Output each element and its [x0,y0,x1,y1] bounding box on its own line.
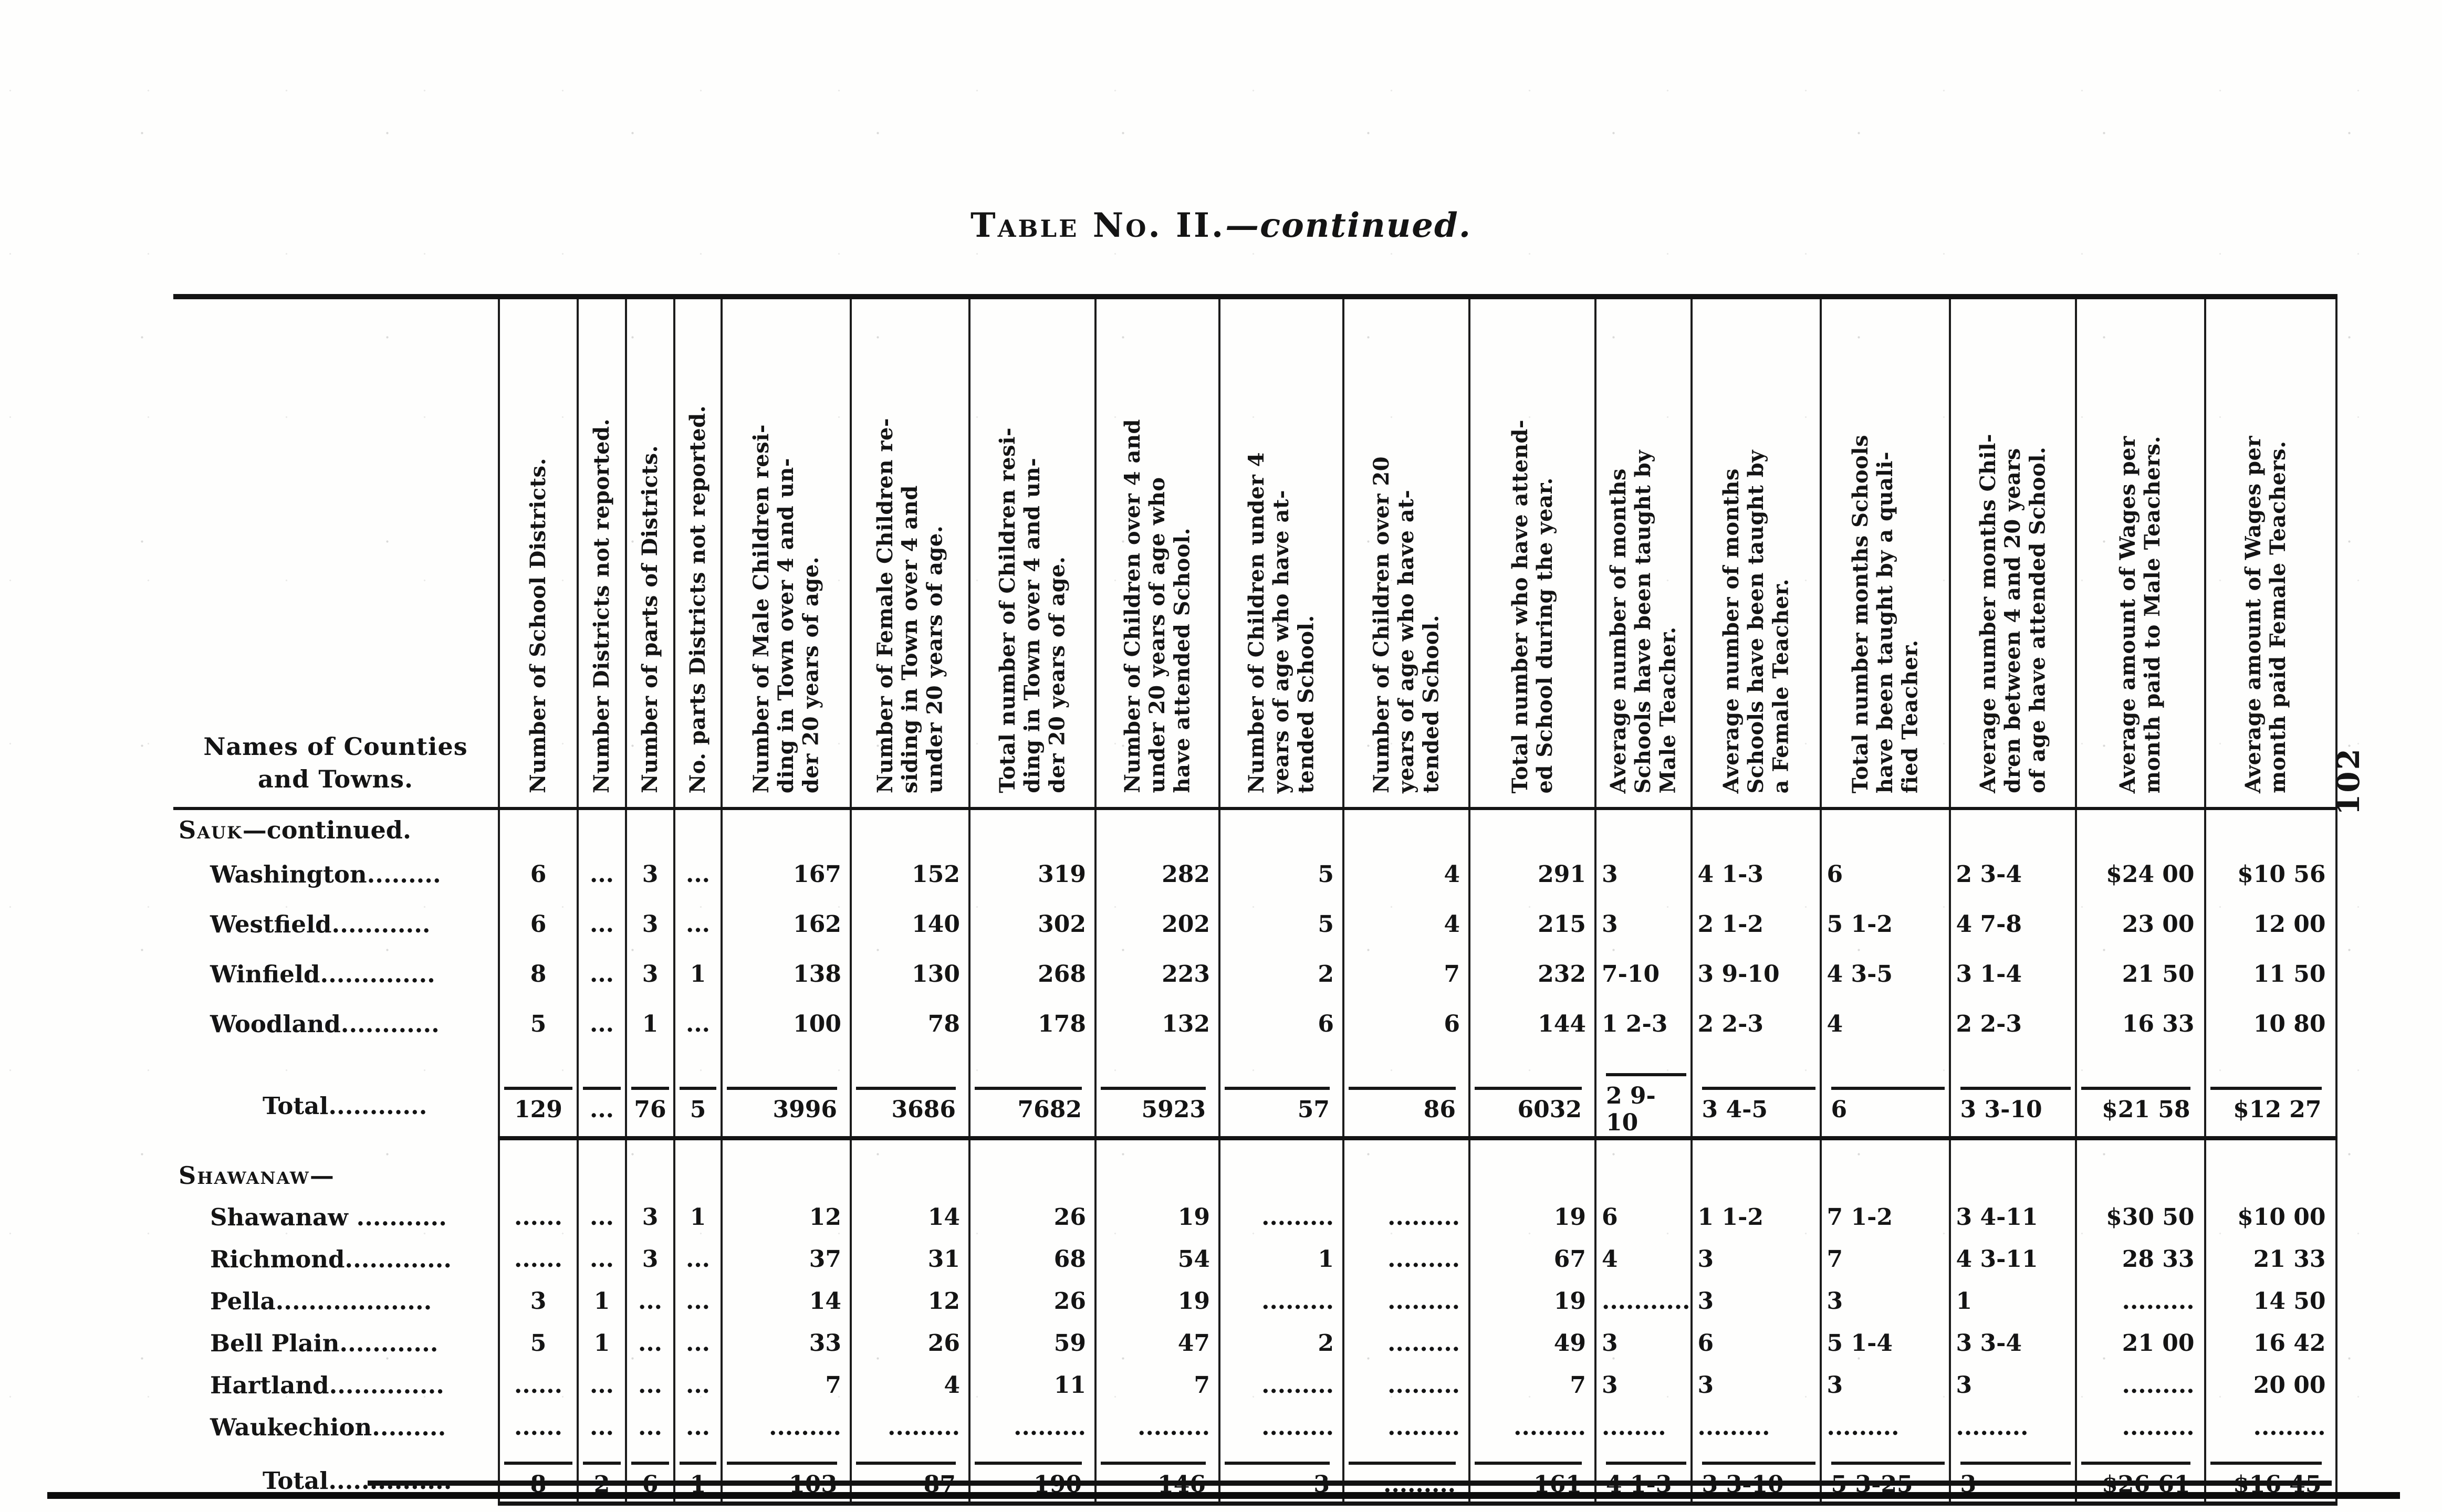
data-cell: 1 [578,1322,626,1364]
data-cell: 33 [722,1322,851,1364]
data-cell: 19 [1469,1196,1595,1238]
data-cell: 268 [969,949,1095,999]
table-row: Westfield............ 6 ... 3 ... 162 14… [173,899,2336,949]
section-heading-shawanaw: Shawanaw— [173,1155,499,1196]
column-header-months-female-teacher: Average number of months Schools have be… [1692,297,1821,808]
data-cell: 6 [1692,1322,1821,1364]
data-cell: 12 [722,1196,851,1238]
data-cell: 302 [969,899,1095,949]
data-cell: ... [626,1322,674,1364]
data-cell: ......... [2076,1280,2205,1322]
data-cell: 4 [1821,999,1950,1049]
data-cell: 1 [578,1280,626,1322]
data-cell: 59 [969,1322,1095,1364]
data-cell: 2 3-4 [1950,849,2076,899]
data-cell: 6 [1219,999,1343,1049]
data-cell: 3686 [851,1073,969,1138]
data-cell: 3 [1950,1364,2076,1406]
data-cell: 6 [499,899,578,949]
data-cell: ......... [1343,1196,1469,1238]
data-cell: ...... [499,1196,578,1238]
data-cell: 14 [722,1280,851,1322]
data-cell: 3 1-4 [1950,949,2076,999]
data-cell: 3 9-10 [1692,949,1821,999]
data-cell: 5 [1219,899,1343,949]
data-cell: ......... [1950,1406,2076,1448]
data-cell: 16 33 [2076,999,2205,1049]
data-cell: ......... [1692,1406,1821,1448]
data-cell: 21 33 [2205,1238,2336,1280]
data-cell: 129 [499,1073,578,1138]
data-cell: ... [578,899,626,949]
column-header-parts-not-reported: No. parts Districts not reported. [674,297,722,808]
column-header-districts-not-reported: Number Districts not reported. [578,297,626,808]
names-column-header: Names of Counties and Towns. [173,297,499,808]
data-cell: 19 [1469,1280,1595,1322]
data-cell: 31 [851,1238,969,1280]
data-cell: 2 [1219,1322,1343,1364]
data-cell: 14 [851,1196,969,1238]
data-cell: 21 00 [2076,1322,2205,1364]
data-cell: 5 1-4 [1821,1322,1950,1364]
row-name: Hartland.............. [173,1364,499,1406]
data-cell: 5 [674,1073,722,1138]
data-cell: 19 [1095,1196,1219,1238]
data-cell: 1 1-2 [1692,1196,1821,1238]
data-cell: 1 [674,949,722,999]
data-cell: 10 80 [2205,999,2336,1049]
data-cell: 223 [1095,949,1219,999]
data-cell: 19 [1095,1280,1219,1322]
data-cell: 144 [1469,999,1595,1049]
data-cell: 3 [1821,1364,1950,1406]
data-cell: ... [674,999,722,1049]
data-cell: 178 [969,999,1095,1049]
data-cell: 3 [1692,1280,1821,1322]
data-cell: 23 00 [2076,899,2205,949]
data-cell: ........ [1595,1406,1692,1448]
data-cell: ... [578,1073,626,1138]
data-cell: 3 [1692,1238,1821,1280]
data-cell: 162 [722,899,851,949]
data-cell: 3 [626,1238,674,1280]
data-cell: 5 [499,999,578,1049]
data-cell: 232 [1469,949,1595,999]
data-cell: ......... [1343,1322,1469,1364]
header-row: Names of Counties and Towns. Number of S… [173,297,2336,808]
data-cell: ... [578,1364,626,1406]
data-cell: ...... [499,1238,578,1280]
scanned-document-page: Table No. II.—continued. Names of Counti… [0,0,2442,1512]
column-header-female-children: Number of Female Children re- siding in … [851,297,969,808]
column-header-avg-months-attended: Average number months Chil- dren between… [1950,297,2076,808]
data-cell: ......... [1219,1280,1343,1322]
data-cell: ... [674,1280,722,1322]
row-name: Bell Plain............ [173,1322,499,1364]
column-header-months-qualified-teacher: Total number months Schools have been ta… [1821,297,1950,808]
data-cell: 5 [1219,849,1343,899]
column-header-months-male-teacher: Average number of months Schools have be… [1595,297,1692,808]
row-name: Shawanaw ........... [173,1196,499,1238]
table-row: Pella................... 3 1 ... ... 14 … [173,1280,2336,1322]
data-cell: 4 [1595,1238,1692,1280]
data-cell: 5923 [1095,1073,1219,1138]
data-cell: ......... [1095,1406,1219,1448]
data-cell: 54 [1095,1238,1219,1280]
data-cell: 4 [1343,899,1469,949]
data-cell: 6 [1821,1073,1950,1138]
data-cell: ... [578,1196,626,1238]
row-name: Woodland............ [173,999,499,1049]
data-cell: 4 1-3 [1692,849,1821,899]
table-row: Hartland.............. ...... ... ... ..… [173,1364,2336,1406]
data-cell: 4 [851,1364,969,1406]
data-cell: ......... [2076,1364,2205,1406]
data-cell: ......... [1343,1406,1469,1448]
section-heading-sauk: Sauk—continued. [173,808,499,849]
data-cell: 3 [626,1196,674,1238]
data-cell: 291 [1469,849,1595,899]
data-cell: ... [578,849,626,899]
data-cell: 3 3-4 [1950,1322,2076,1364]
data-cell: 3 [1595,899,1692,949]
row-name: Washington......... [173,849,499,899]
data-cell: ... [674,849,722,899]
spacer-row [173,1049,2336,1073]
data-cell: 2 9-10 [1595,1073,1692,1138]
data-cell: 3 [626,949,674,999]
data-cell: 20 00 [2205,1364,2336,1406]
data-cell: 132 [1095,999,1219,1049]
data-cell: ......... [1469,1406,1595,1448]
data-cell: 16 42 [2205,1322,2336,1364]
data-cell: 4 7-8 [1950,899,2076,949]
data-cell: ......... [1343,1364,1469,1406]
data-cell: 7682 [969,1073,1095,1138]
data-cell: 3 [1595,1322,1692,1364]
data-cell: $21 58 [2076,1073,2205,1138]
data-cell: 140 [851,899,969,949]
data-cell: 2 1-2 [1692,899,1821,949]
data-cell: 49 [1469,1322,1595,1364]
scan-edge-line [47,1492,2400,1499]
table-bottom-double-rule [368,1480,2332,1486]
data-cell: $30 50 [2076,1196,2205,1238]
data-cell: 3 [1821,1280,1950,1322]
column-header-school-districts: Number of School Districts. [499,297,578,808]
spacer-row [173,1448,2336,1457]
row-name: Richmond............. [173,1238,499,1280]
data-cell: 21 50 [2076,949,2205,999]
data-cell: ... [674,1238,722,1280]
data-cell: 3 4-11 [1950,1196,2076,1238]
data-cell: ... [626,1364,674,1406]
table-row: Waukechion......... ...... ... ... ... .… [173,1406,2336,1448]
data-cell: 3 [626,899,674,949]
data-cell: 202 [1095,899,1219,949]
data-cell: ...... [499,1364,578,1406]
section-heading-row: Sauk—continued. [173,808,2336,849]
data-cell: 14 50 [2205,1280,2336,1322]
data-cell: 37 [722,1238,851,1280]
row-name: Westfield............ [173,899,499,949]
row-name: Winfield.............. [173,949,499,999]
data-cell: 7 1-2 [1821,1196,1950,1238]
data-cell: 12 [851,1280,969,1322]
data-cell: ......... [1343,1238,1469,1280]
data-cell: 3996 [722,1073,851,1138]
data-cell: 11 [969,1364,1095,1406]
spacer-row [173,1138,2336,1155]
data-cell: 138 [722,949,851,999]
data-cell: 215 [1469,899,1595,949]
data-cell: ... [578,1406,626,1448]
table-row: Washington......... 6 ... 3 ... 167 152 … [173,849,2336,899]
data-cell: 26 [851,1322,969,1364]
table-row: Bell Plain............ 5 1 ... ... 33 26… [173,1322,2336,1364]
page-number: 102 [2331,739,2373,823]
data-cell: 26 [969,1196,1095,1238]
data-cell: 7 [1821,1238,1950,1280]
table-row: Richmond............. ...... ... 3 ... 3… [173,1238,2336,1280]
data-cell: 67 [1469,1238,1595,1280]
statistics-table: Names of Counties and Towns. Number of S… [173,294,2337,1506]
data-cell: ......... [2076,1406,2205,1448]
data-cell: ... [674,899,722,949]
data-cell: 28 33 [2076,1238,2205,1280]
data-cell: 4 3-5 [1821,949,1950,999]
data-cell: 2 2-3 [1692,999,1821,1049]
data-cell: 8 [499,949,578,999]
column-header-male-children: Number of Male Children resi- ding in To… [722,297,851,808]
table-title-continued: —continued. [1225,206,1472,245]
data-cell: 152 [851,849,969,899]
data-cell: 282 [1095,849,1219,899]
data-cell: 7 [1095,1364,1219,1406]
data-cell: ......... [969,1406,1095,1448]
row-name: Waukechion......... [173,1406,499,1448]
data-cell: 86 [1343,1073,1469,1138]
data-cell: 6 [1343,999,1469,1049]
column-header-parts-of-districts: Number of parts of Districts. [626,297,674,808]
data-cell: ......... [1219,1406,1343,1448]
column-header-wages-male: Average amount of Wages per month paid t… [2076,297,2205,808]
data-cell: ... [626,1406,674,1448]
data-cell: ... [674,1322,722,1364]
data-cell: 3 [1595,1364,1692,1406]
data-cell: 1 2-3 [1595,999,1692,1049]
data-cell: ... [626,1280,674,1322]
data-cell: 3 [626,849,674,899]
data-cell: 7 [722,1364,851,1406]
data-cell: 78 [851,999,969,1049]
data-cell: $24 00 [2076,849,2205,899]
data-cell: 1 [1950,1280,2076,1322]
data-cell: 100 [722,999,851,1049]
data-cell: ... [674,1406,722,1448]
page-title: Table No. II.—continued. [0,206,2442,245]
column-header-total-attended: Total number who have attend- ed School … [1469,297,1595,808]
data-cell: 6 [1821,849,1950,899]
data-cell: 7-10 [1595,949,1692,999]
data-cell: ...... [499,1406,578,1448]
data-cell: ......... [1821,1406,1950,1448]
data-cell: $12 27 [2205,1073,2336,1138]
data-cell: 1 [674,1196,722,1238]
data-cell: 3 4-5 [1692,1073,1821,1138]
data-cell: ......... [851,1406,969,1448]
data-cell: 3 [499,1280,578,1322]
data-cell: ......... [1219,1364,1343,1406]
data-cell: 2 2-3 [1950,999,2076,1049]
table-row: Shawanaw ........... ...... ... 3 1 12 1… [173,1196,2336,1238]
data-cell: 68 [969,1238,1095,1280]
data-cell: 76 [626,1073,674,1138]
data-cell: 1 [1219,1238,1343,1280]
data-cell: ... [578,949,626,999]
data-cell: ... [578,999,626,1049]
data-cell: 6 [1595,1196,1692,1238]
table-title-main: Table No. II. [970,206,1225,245]
data-cell: 4 3-11 [1950,1238,2076,1280]
data-cell: ........... [1595,1280,1692,1322]
data-cell: 130 [851,949,969,999]
data-cell: 7 [1343,949,1469,999]
data-cell: $10 00 [2205,1196,2336,1238]
data-cell: 47 [1095,1322,1219,1364]
data-cell: 4 [1343,849,1469,899]
data-cell: 2 [1219,949,1343,999]
data-cell: 319 [969,849,1095,899]
data-cell: ......... [1219,1196,1343,1238]
data-cell: ......... [1343,1280,1469,1322]
data-cell: 57 [1219,1073,1343,1138]
data-cell: ... [674,1364,722,1406]
section-heading-row: Shawanaw— [173,1155,2336,1196]
data-cell: 12 00 [2205,899,2336,949]
data-cell: 3 [1692,1364,1821,1406]
data-cell: 26 [969,1280,1095,1322]
data-cell: 1 [626,999,674,1049]
data-cell: 6 [499,849,578,899]
data-cell: $10 56 [2205,849,2336,899]
row-name: Pella................... [173,1280,499,1322]
row-name: Total............ [173,1073,499,1138]
data-cell: 5 [499,1322,578,1364]
column-header-attended-under-4: Number of Children under 4 years of age … [1219,297,1343,808]
data-cell: 7 [1469,1364,1595,1406]
data-cell: 3 [1595,849,1692,899]
data-cell: 167 [722,849,851,899]
total-row: Total............ 129 ... 76 5 3996 3686… [173,1073,2336,1138]
data-cell: 3 3-10 [1950,1073,2076,1138]
data-cell: ... [578,1238,626,1280]
data-cell: 5 1-2 [1821,899,1950,949]
column-header-wages-female: Average amount of Wages per month paid F… [2205,297,2336,808]
column-header-attended-over-20: Number of Children over 20 years of age … [1343,297,1469,808]
data-cell: 6032 [1469,1073,1595,1138]
data-cell: 11 50 [2205,949,2336,999]
table-row: Woodland............ 5 ... 1 ... 100 78 … [173,999,2336,1049]
column-header-total-children: Total number of Children resi- ding in T… [969,297,1095,808]
data-cell: ......... [722,1406,851,1448]
column-header-attended-4-20: Number of Children over 4 and under 20 y… [1095,297,1219,808]
table-row: Winfield.............. 8 ... 3 1 138 130… [173,949,2336,999]
data-cell: ......... [2205,1406,2336,1448]
